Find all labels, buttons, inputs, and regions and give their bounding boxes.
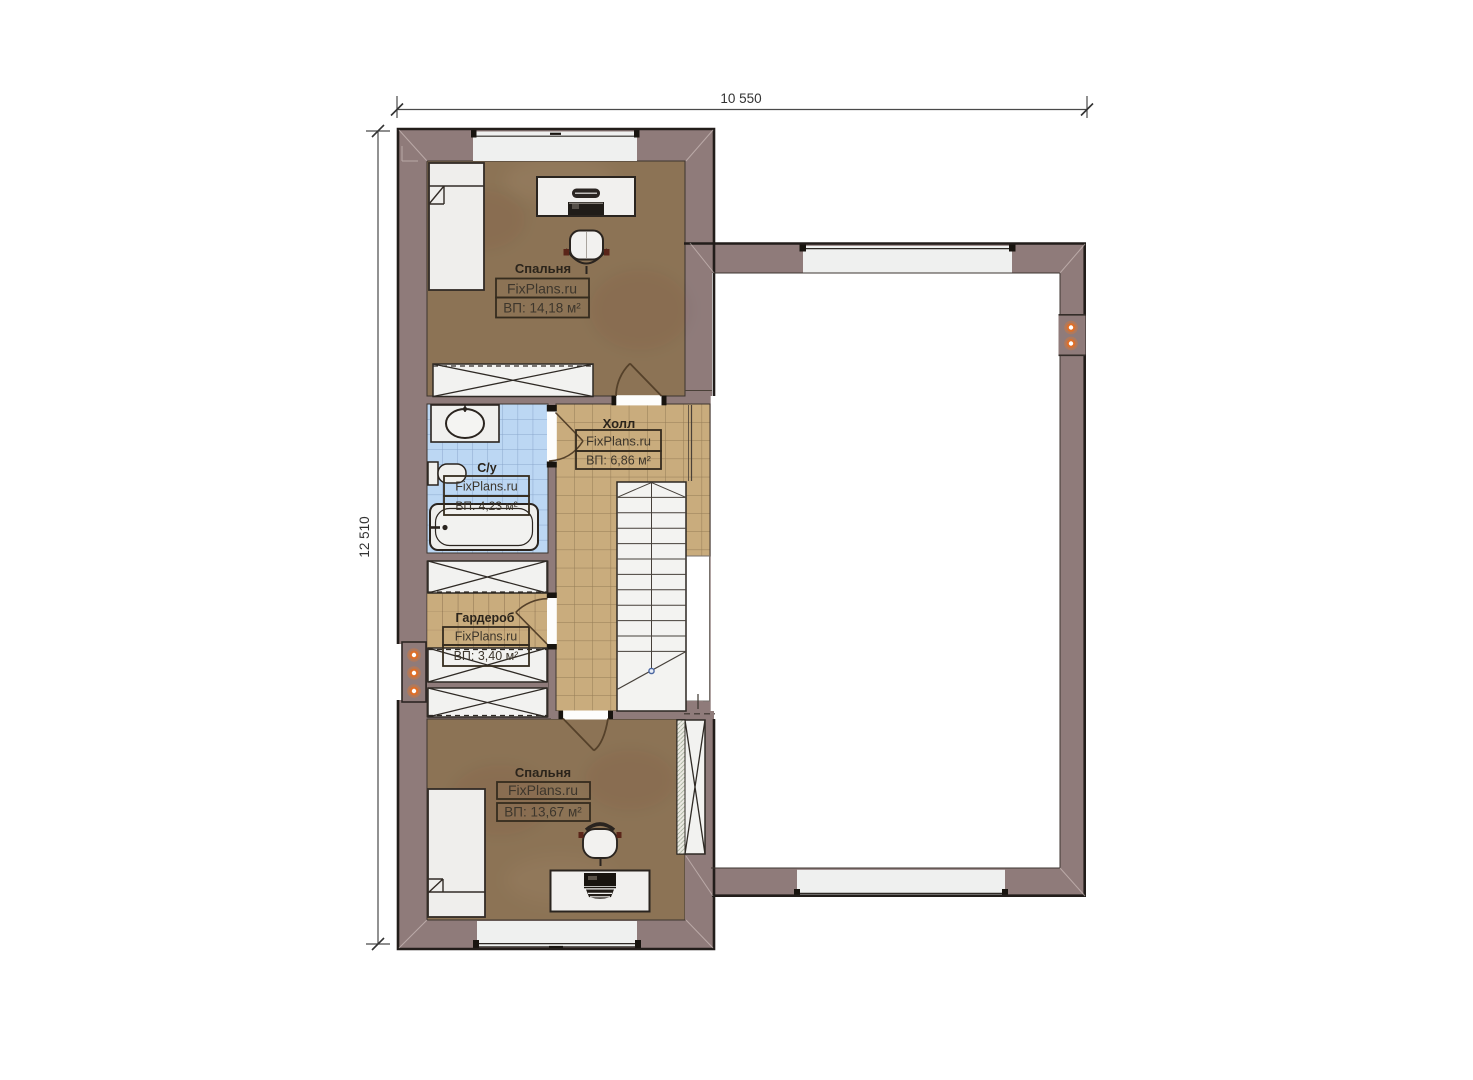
- svg-text:FixPlans.ru: FixPlans.ru: [507, 281, 577, 297]
- svg-text:FixPlans.ru: FixPlans.ru: [455, 480, 518, 494]
- svg-text:12 510: 12 510: [357, 516, 372, 557]
- svg-text:Гардероб: Гардероб: [455, 611, 514, 625]
- svg-text:FixPlans.ru: FixPlans.ru: [586, 434, 651, 449]
- svg-text:Холл: Холл: [603, 416, 636, 431]
- svg-text:ВП: 6,86 м²: ВП: 6,86 м²: [586, 454, 651, 468]
- svg-text:Спальня: Спальня: [515, 261, 571, 276]
- svg-text:ВП: 4,23 м²: ВП: 4,23 м²: [455, 499, 517, 513]
- svg-text:ВП: 3,40 м²: ВП: 3,40 м²: [454, 649, 519, 663]
- svg-text:ВП: 14,18 м²: ВП: 14,18 м²: [503, 301, 581, 316]
- svg-text:С/у: С/у: [477, 461, 497, 475]
- svg-text:FixPlans.ru: FixPlans.ru: [455, 630, 518, 644]
- svg-text:Спальня: Спальня: [515, 765, 571, 780]
- svg-text:10 550: 10 550: [720, 91, 761, 106]
- svg-text:FixPlans.ru: FixPlans.ru: [508, 782, 578, 798]
- svg-text:ВП: 13,67 м²: ВП: 13,67 м²: [504, 805, 582, 820]
